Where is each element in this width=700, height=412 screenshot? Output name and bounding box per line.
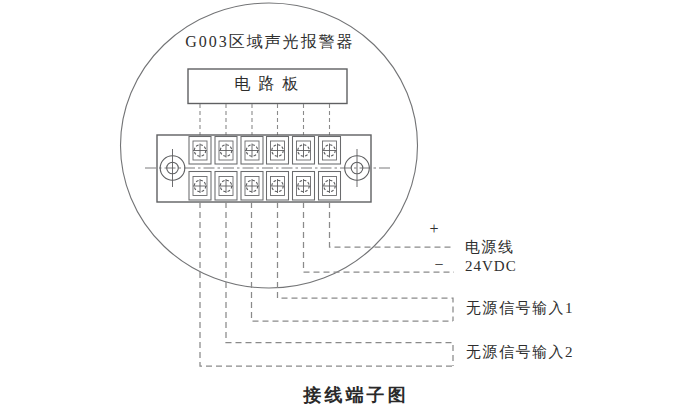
mounting-hole-left [160, 149, 185, 187]
terminal-cell-top-2 [215, 137, 237, 165]
terminal-wiring-diagram: G003区域声光报警器 电路板 + − 电源线 24VDC 无源信号输入1 无源… [0, 0, 700, 412]
power-minus-sign: − [428, 256, 450, 274]
terminal-cell-top-6 [319, 137, 341, 165]
signal-input-2-label: 无源信号输入2 [466, 344, 574, 361]
device-title: G003区域声光报警器 [160, 33, 380, 51]
terminal-cell-bottom-6 [319, 172, 341, 201]
power-plus-sign: + [423, 220, 445, 238]
power-voltage-label: 24VDC [465, 258, 517, 275]
terminal-cell-top-1 [189, 137, 211, 165]
terminal-cell-top-3 [241, 137, 263, 165]
terminal-cell-bottom-5 [293, 172, 315, 201]
wire-signal2-bottom [200, 202, 453, 366]
signal-input-1-label: 无源信号输入1 [466, 300, 574, 317]
terminal-cell-bottom-4 [267, 172, 289, 201]
power-line-label: 电源线 [465, 239, 515, 256]
terminal-cell-bottom-2 [215, 172, 237, 201]
terminal-cell-top-4 [267, 137, 289, 165]
wire-signal2-top [226, 202, 453, 366]
board-terminal-links [200, 104, 330, 135]
diagram-canvas [0, 0, 700, 412]
circuit-board-label: 电路板 [188, 75, 347, 93]
terminal-cell-bottom-3 [241, 172, 263, 201]
terminal-cell-bottom-1 [189, 172, 211, 201]
terminal-cell-top-5 [293, 137, 315, 165]
diagram-caption: 接线端子图 [256, 386, 456, 406]
